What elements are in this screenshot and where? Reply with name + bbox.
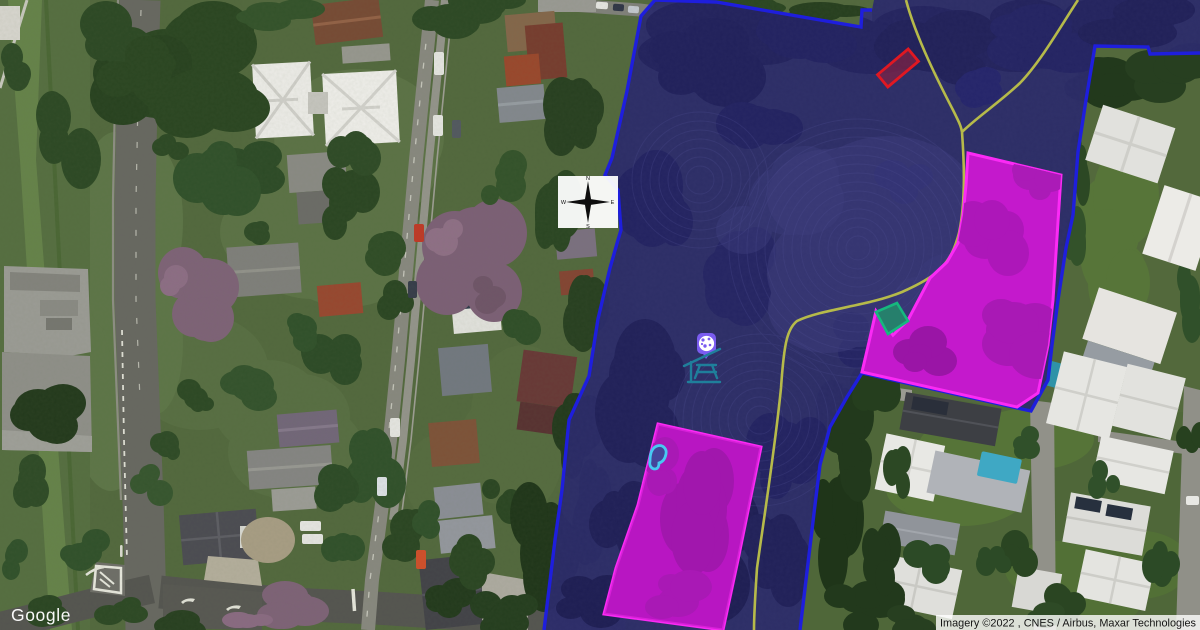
svg-text:N: N [586,176,590,182]
svg-text:W: W [561,200,567,206]
svg-text:Imagery ©2022 , CNES / Airbus,: Imagery ©2022 , CNES / Airbus, Maxar Tec… [940,618,1196,630]
svg-text:E: E [611,200,615,206]
svg-text:S: S [586,224,590,230]
svg-text:Google: Google [11,605,71,625]
